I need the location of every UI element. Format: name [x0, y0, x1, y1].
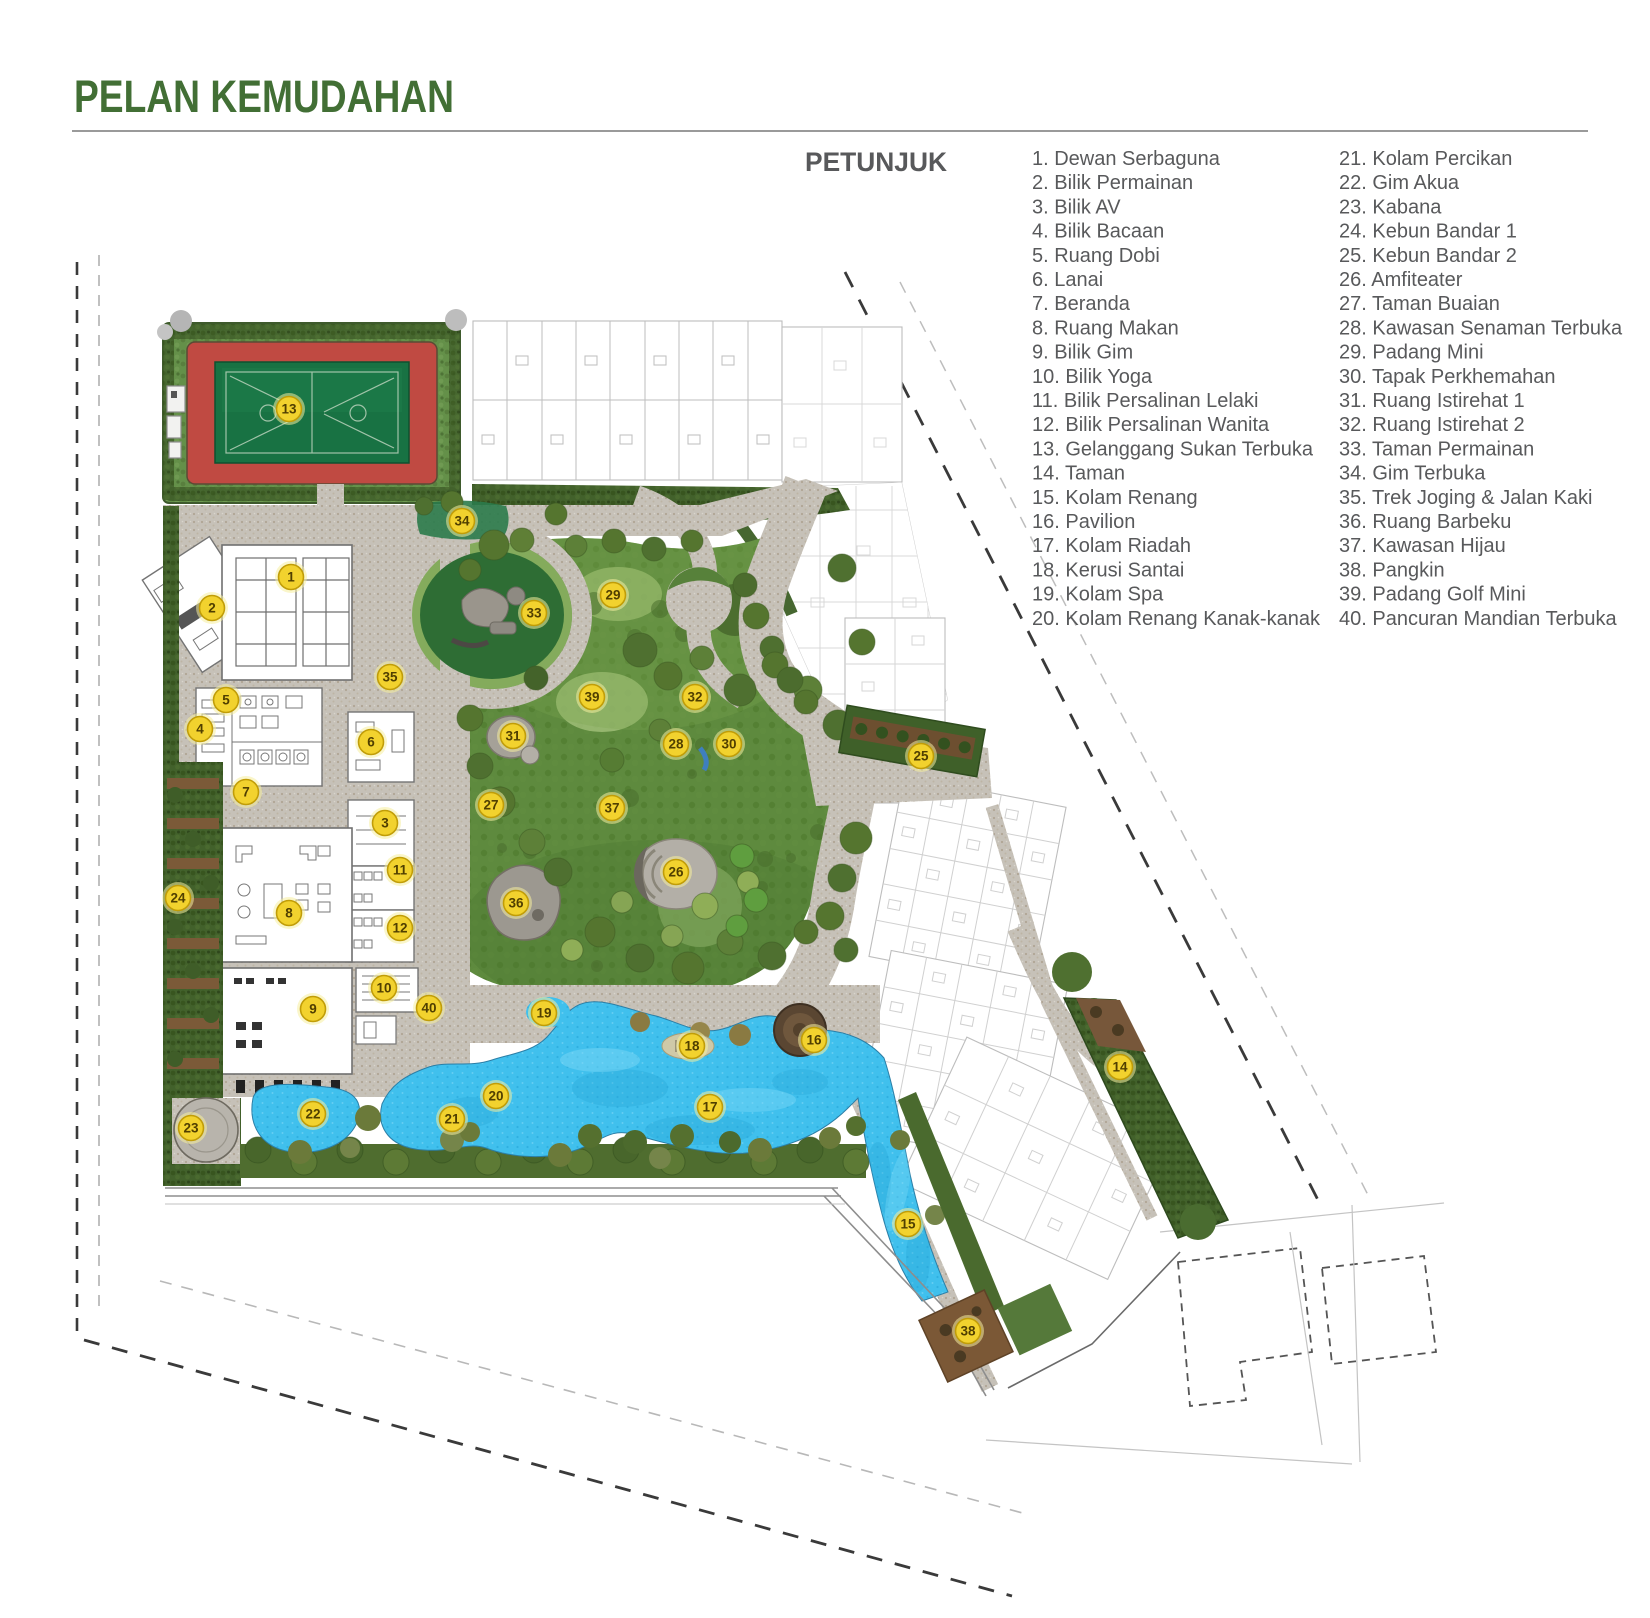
svg-text:31. Ruang Istirehat 1: 31. Ruang Istirehat 1 [1339, 390, 1525, 412]
svg-text:13: 13 [281, 402, 297, 417]
svg-text:PELAN KEMUDAHAN: PELAN KEMUDAHAN [74, 71, 454, 122]
svg-text:10: 10 [376, 981, 391, 996]
svg-text:4. Bilik Bacaan: 4. Bilik Bacaan [1032, 221, 1164, 243]
svg-text:6. Lanai: 6. Lanai [1032, 269, 1103, 291]
svg-text:32: 32 [687, 690, 702, 705]
svg-text:37: 37 [604, 801, 619, 816]
svg-text:18. Kerusi Santai: 18. Kerusi Santai [1032, 559, 1184, 581]
svg-text:30: 30 [721, 737, 736, 752]
svg-text:35: 35 [382, 670, 398, 685]
svg-text:10. Bilik Yoga: 10. Bilik Yoga [1032, 366, 1153, 388]
svg-text:22: 22 [305, 1107, 320, 1122]
svg-text:20. Kolam Renang Kanak-kanak: 20. Kolam Renang Kanak-kanak [1032, 608, 1321, 630]
svg-text:26. Amfiteater: 26. Amfiteater [1339, 269, 1463, 291]
svg-text:23. Kabana: 23. Kabana [1339, 196, 1442, 218]
svg-text:34. Gim Terbuka: 34. Gim Terbuka [1339, 463, 1486, 485]
svg-text:12: 12 [392, 921, 407, 936]
svg-text:5: 5 [222, 693, 230, 708]
svg-text:28: 28 [668, 737, 684, 752]
svg-text:32. Ruang Istirehat 2: 32. Ruang Istirehat 2 [1339, 414, 1525, 436]
svg-text:19: 19 [536, 1006, 551, 1021]
svg-text:15: 15 [900, 1217, 916, 1232]
svg-text:36. Ruang Barbeku: 36. Ruang Barbeku [1339, 511, 1511, 533]
svg-text:24: 24 [170, 891, 186, 906]
svg-text:28. Kawasan Senaman Terbuka: 28. Kawasan Senaman Terbuka [1339, 317, 1623, 339]
svg-text:22. Gim Akua: 22. Gim Akua [1339, 172, 1460, 194]
svg-text:40: 40 [421, 1001, 436, 1016]
svg-text:8: 8 [285, 906, 293, 921]
svg-text:34: 34 [454, 514, 470, 529]
svg-text:5. Ruang Dobi: 5. Ruang Dobi [1032, 245, 1160, 267]
svg-text:38: 38 [960, 1324, 976, 1339]
svg-text:3. Bilik AV: 3. Bilik AV [1032, 196, 1121, 218]
svg-text:9: 9 [309, 1002, 317, 1017]
svg-text:23: 23 [183, 1121, 199, 1136]
svg-text:14: 14 [1112, 1060, 1128, 1075]
svg-text:20: 20 [488, 1089, 503, 1104]
svg-text:25: 25 [913, 749, 929, 764]
svg-text:29. Padang Mini: 29. Padang Mini [1339, 342, 1484, 364]
svg-text:7: 7 [242, 785, 250, 800]
svg-text:15. Kolam Renang: 15. Kolam Renang [1032, 487, 1198, 509]
svg-text:30. Tapak Perkhemahan: 30. Tapak Perkhemahan [1339, 366, 1555, 388]
svg-text:24. Kebun Bandar 1: 24. Kebun Bandar 1 [1339, 221, 1517, 243]
svg-text:19. Kolam Spa: 19. Kolam Spa [1032, 584, 1164, 606]
svg-text:36: 36 [508, 896, 524, 911]
svg-text:29: 29 [605, 588, 620, 603]
svg-text:2: 2 [208, 601, 216, 616]
svg-text:39: 39 [584, 690, 599, 705]
svg-text:3: 3 [381, 816, 389, 831]
svg-text:21: 21 [444, 1112, 460, 1127]
svg-text:1: 1 [287, 570, 295, 585]
svg-text:21. Kolam Percikan: 21. Kolam Percikan [1339, 148, 1512, 170]
svg-text:27. Taman Buaian: 27. Taman Buaian [1339, 293, 1500, 315]
svg-text:25. Kebun Bandar 2: 25. Kebun Bandar 2 [1339, 245, 1517, 267]
svg-text:4: 4 [196, 722, 204, 737]
svg-text:PETUNJUK: PETUNJUK [805, 147, 947, 177]
svg-text:17: 17 [702, 1100, 717, 1115]
svg-text:11: 11 [393, 863, 408, 878]
svg-text:37. Kawasan Hijau: 37. Kawasan Hijau [1339, 535, 1506, 557]
svg-text:1. Dewan Serbaguna: 1. Dewan Serbaguna [1032, 148, 1221, 170]
svg-text:17. Kolam Riadah: 17. Kolam Riadah [1032, 535, 1191, 557]
svg-text:16: 16 [806, 1033, 822, 1048]
svg-text:31: 31 [505, 729, 521, 744]
svg-text:38. Pangkin: 38. Pangkin [1339, 559, 1445, 581]
svg-text:40. Pancuran Mandian Terbuka: 40. Pancuran Mandian Terbuka [1339, 608, 1617, 630]
svg-text:9. Bilik Gim: 9. Bilik Gim [1032, 342, 1133, 364]
svg-text:35. Trek Joging & Jalan Kaki: 35. Trek Joging & Jalan Kaki [1339, 487, 1592, 509]
svg-text:27: 27 [483, 798, 498, 813]
svg-text:2. Bilik Permainan: 2. Bilik Permainan [1032, 172, 1193, 194]
svg-text:26: 26 [668, 865, 684, 880]
svg-text:6: 6 [367, 735, 375, 750]
svg-text:11. Bilik Persalinan Lelaki: 11. Bilik Persalinan Lelaki [1032, 390, 1258, 412]
svg-text:7. Beranda: 7. Beranda [1032, 293, 1131, 315]
svg-text:33: 33 [526, 606, 542, 621]
svg-text:14. Taman: 14. Taman [1032, 463, 1125, 485]
svg-text:8. Ruang Makan: 8. Ruang Makan [1032, 317, 1179, 339]
svg-text:18: 18 [684, 1039, 700, 1054]
svg-text:13. Gelanggang Sukan Terbuka: 13. Gelanggang Sukan Terbuka [1032, 438, 1314, 460]
svg-text:16. Pavilion: 16. Pavilion [1032, 511, 1135, 533]
svg-text:12. Bilik Persalinan Wanita: 12. Bilik Persalinan Wanita [1032, 414, 1270, 436]
svg-text:33. Taman Permainan: 33. Taman Permainan [1339, 438, 1534, 460]
svg-text:39. Padang Golf Mini: 39. Padang Golf Mini [1339, 584, 1526, 606]
